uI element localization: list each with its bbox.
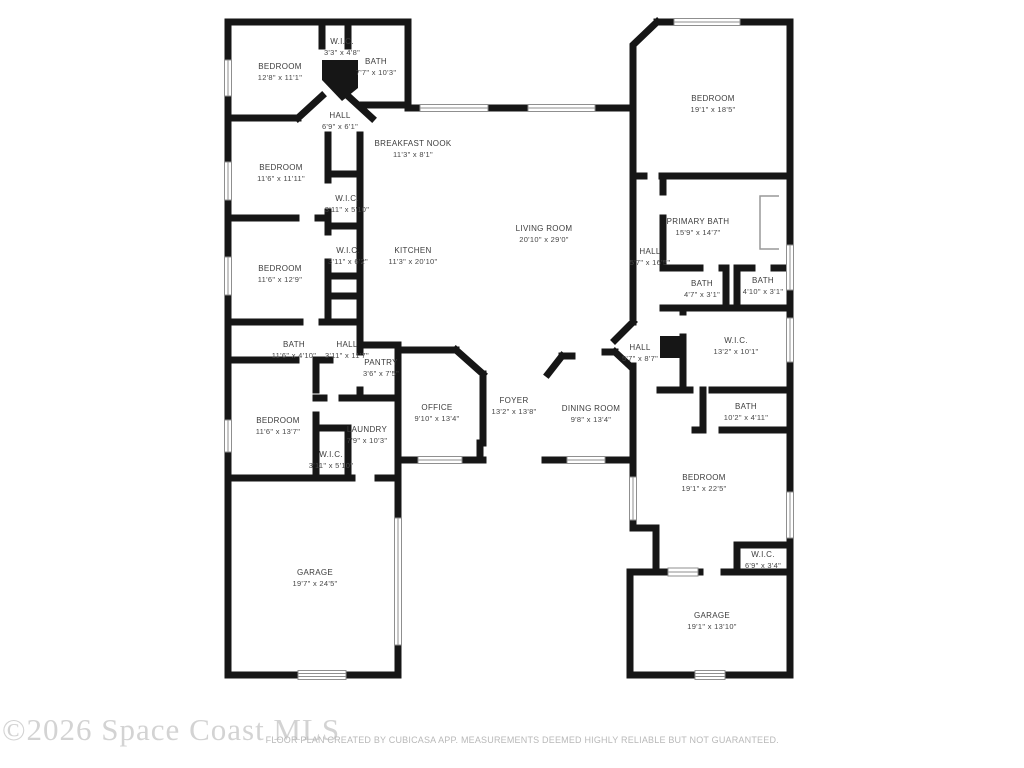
fixtures-layer (760, 196, 779, 249)
room-dims: 11'6" x 12'9" (258, 274, 302, 285)
room-label-foyer: FOYER13'2" x 13'8" (491, 395, 536, 417)
room-dims: 19'1" x 18'5" (690, 104, 735, 115)
floorplan-drawing (0, 0, 1024, 768)
garage-door (695, 671, 725, 680)
room-name: HALL (622, 342, 658, 354)
room-dims: 4'10" x 3'1" (743, 286, 784, 297)
solid-wall-wedge (322, 60, 358, 101)
room-name: PRIMARY BATH (667, 216, 730, 228)
room-label-wic-left-1: W.I.C.3'11" x 5'10" (325, 193, 369, 215)
window (225, 60, 232, 96)
window (787, 318, 794, 362)
room-label-primary-bath: PRIMARY BATH15'9" x 14'7" (667, 216, 730, 238)
room-dims: 4'7" x 3'1" (684, 289, 720, 300)
room-label-bath-small-right: BATH4'10" x 3'1" (743, 275, 784, 297)
room-name: BATH (272, 339, 316, 351)
window (787, 492, 794, 538)
window (420, 105, 488, 112)
room-dims: 5'7" x 16'5" (630, 257, 671, 268)
room-label-pantry: PANTRY3'6" x 7'5" (363, 357, 399, 379)
floorplan-image: W.I.C.3'3" x 4'8" BEDROOM12'8" x 11'1" B… (0, 0, 1024, 768)
room-name: OFFICE (414, 402, 459, 414)
room-name: HALL (322, 110, 358, 122)
room-label-bedroom-top-right: BEDROOM19'1" x 18'5" (690, 93, 735, 115)
window (630, 477, 637, 520)
room-name: BATH (356, 56, 397, 68)
room-dims: 11'6" x 13'7" (256, 426, 300, 437)
room-name: W.I.C. (713, 335, 758, 347)
room-name: W.I.C. (745, 549, 781, 561)
room-dims: 5'7" x 8'7" (622, 353, 658, 364)
window (528, 105, 595, 112)
room-name: GARAGE (292, 567, 337, 579)
room-dims: 9'8" x 13'4" (562, 414, 620, 425)
room-name: BEDROOM (258, 61, 302, 73)
room-label-garage-left: GARAGE19'7" x 24'5" (292, 567, 337, 589)
room-name: BEDROOM (690, 93, 735, 105)
window (567, 457, 605, 464)
room-dims: 3'11" x 5'10" (325, 204, 369, 215)
room-name: LAUNDRY (347, 424, 388, 436)
room-name: BATH (743, 275, 784, 287)
room-name: KITCHEN (389, 245, 438, 257)
room-dims: 6'9" x 6'1" (322, 121, 358, 132)
room-name: BATH (724, 401, 768, 413)
room-label-office: OFFICE9'10" x 13'4" (414, 402, 459, 424)
window (418, 457, 462, 464)
room-label-bath-top-left: BATH7'7" x 10'3" (356, 56, 397, 78)
room-name: BEDROOM (681, 472, 726, 484)
room-label-breakfast-nook: BREAKFAST NOOK11'3" x 8'1" (375, 138, 452, 160)
window (225, 162, 232, 200)
room-dims: 11'6" x 4'10" (272, 350, 316, 361)
room-label-living-room: LIVING ROOM20'10" x 29'0" (516, 223, 573, 245)
room-name: PANTRY (363, 357, 399, 369)
room-dims: 11'6" x 11'11" (257, 173, 305, 184)
room-name: BEDROOM (257, 162, 305, 174)
room-dims: 12'8" x 11'1" (258, 72, 302, 83)
room-name: BEDROOM (258, 263, 302, 275)
room-label-wic-top-left: W.I.C.3'3" x 4'8" (324, 36, 360, 58)
room-label-bedroom-left-3: BEDROOM11'6" x 12'9" (258, 263, 302, 285)
room-dims: 11'3" x 20'10" (389, 256, 438, 267)
room-dims: 3'11" x 5'10" (309, 460, 353, 471)
room-label-laundry: LAUNDRY7'9" x 10'3" (347, 424, 388, 446)
room-name: HALL (630, 246, 671, 258)
room-label-bath-left-wing: BATH11'6" x 4'10" (272, 339, 316, 361)
room-name: DINING ROOM (562, 403, 620, 415)
room-name: BATH (684, 278, 720, 290)
room-dims: 3'3" x 4'8" (324, 47, 360, 58)
room-dims: 3'11" x 6'2" (328, 256, 368, 267)
room-dims: 3'6" x 7'5" (363, 368, 399, 379)
room-label-bath-small-left: BATH4'7" x 3'1" (684, 278, 720, 300)
room-name: W.I.C. (324, 36, 360, 48)
room-dims: 13'2" x 13'8" (491, 406, 536, 417)
room-dims: 6'9" x 3'4" (745, 560, 781, 571)
room-name: GARAGE (687, 610, 737, 622)
room-dims: 19'1" x 22'5" (681, 483, 726, 494)
room-name: W.I.C. (309, 449, 353, 461)
room-dims: 11'3" x 8'1" (375, 149, 452, 160)
window (668, 568, 698, 576)
garage-door (298, 671, 346, 680)
window (225, 257, 232, 295)
room-dims: 19'7" x 24'5" (292, 578, 337, 589)
window (395, 518, 402, 645)
room-dims: 15'9" x 14'7" (667, 227, 730, 238)
room-label-bedroom-left-2: BEDROOM11'6" x 11'11" (257, 162, 305, 184)
room-label-bedroom-top-left: BEDROOM12'8" x 11'1" (258, 61, 302, 83)
room-label-garage-right: GARAGE19'1" x 13'10" (687, 610, 737, 632)
room-dims: 19'1" x 13'10" (687, 621, 737, 632)
room-label-hall-right: HALL5'7" x 16'5" (630, 246, 671, 268)
room-name: W.I.C. (325, 193, 369, 205)
disclaimer-text: FLOOR PLAN CREATED BY CUBICASA APP. MEAS… (266, 735, 779, 745)
room-name: FOYER (491, 395, 536, 407)
solid-wall-block (660, 336, 683, 358)
window (225, 420, 232, 452)
room-dims: 13'2" x 10'1" (713, 346, 758, 357)
room-label-bedroom-left-4: BEDROOM11'6" x 13'7" (256, 415, 300, 437)
room-label-kitchen: KITCHEN11'3" x 20'10" (389, 245, 438, 267)
room-dims: 7'7" x 10'3" (356, 67, 397, 78)
room-dims: 20'10" x 29'0" (516, 234, 573, 245)
room-label-wic-bottom-right: W.I.C.6'9" x 3'4" (745, 549, 781, 571)
room-label-wic-laundry: W.I.C.3'11" x 5'10" (309, 449, 353, 471)
room-label-wic-left-2: W.I.C.3'11" x 6'2" (328, 245, 368, 267)
room-dims: 7'9" x 10'3" (347, 435, 388, 446)
room-name: HALL (325, 339, 369, 351)
shower-fixture (760, 196, 779, 249)
room-dims: 10'2" x 4'11" (724, 412, 768, 423)
room-label-bedroom-bottom-right: BEDROOM19'1" x 22'5" (681, 472, 726, 494)
room-name: BREAKFAST NOOK (375, 138, 452, 150)
window (787, 245, 794, 290)
room-label-wic-primary: W.I.C.13'2" x 10'1" (713, 335, 758, 357)
room-label-dining-room: DINING ROOM9'8" x 13'4" (562, 403, 620, 425)
room-name: W.I.C. (328, 245, 368, 257)
room-dims: 9'10" x 13'4" (414, 413, 459, 424)
room-label-hall-center: HALL5'7" x 8'7" (622, 342, 658, 364)
room-name: BEDROOM (256, 415, 300, 427)
window (674, 19, 740, 26)
room-label-bath-right-wing: BATH10'2" x 4'11" (724, 401, 768, 423)
room-label-hall-top-left: HALL6'9" x 6'1" (322, 110, 358, 132)
room-name: LIVING ROOM (516, 223, 573, 235)
